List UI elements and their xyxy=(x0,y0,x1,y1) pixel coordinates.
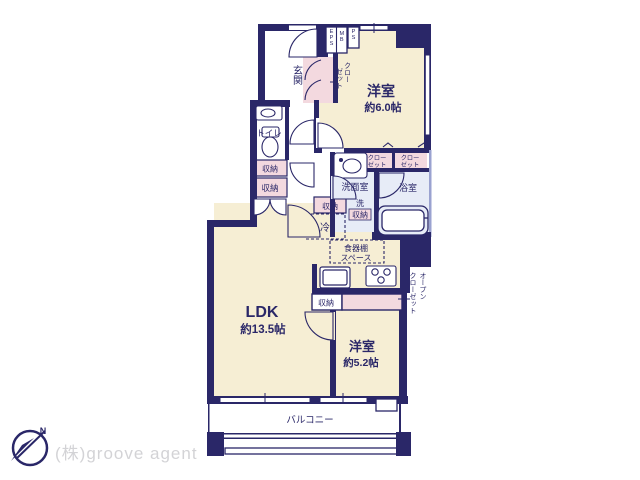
laundry-label: 洗 xyxy=(356,198,364,208)
closet1-line2: ゼット xyxy=(368,161,387,169)
toilet-label: トイレ xyxy=(256,128,282,138)
balcony-step xyxy=(376,399,397,411)
balcony-label: バルコニー xyxy=(286,415,333,426)
laundry-storage-label: 収納 xyxy=(352,210,368,220)
corner-block xyxy=(396,24,424,48)
balcony xyxy=(207,399,411,456)
storage-strip-label: 収納 xyxy=(318,298,334,308)
closet2-line2: ゼット xyxy=(401,161,420,169)
closet2-line1: クロー xyxy=(401,155,420,162)
stove-icon xyxy=(366,266,396,286)
toilet-sink-icon xyxy=(256,106,282,120)
ps-label: PS xyxy=(351,29,357,41)
entrance-closet-label-1: クロー xyxy=(344,62,352,83)
washbasin-icon xyxy=(334,153,367,178)
window-right xyxy=(425,55,430,135)
floor-plan-page: EPS MB PS 洋室 約6.0帖 玄関 クロー ゼット トイレ 収納 収納 … xyxy=(0,0,640,480)
western5-size: 約5.2帖 xyxy=(343,356,379,369)
open-closet-col1: オープン xyxy=(419,272,427,300)
kitchen-sink-icon xyxy=(320,267,350,288)
entrance-closet-label-2: ゼット xyxy=(336,67,344,89)
cupboard-label-1: 食器棚 xyxy=(344,243,368,253)
watermark: (株)groove agent xyxy=(55,444,198,463)
entrance-label: 玄関 xyxy=(291,64,303,86)
eps-label: EPS xyxy=(329,29,335,47)
bathroom-label: 浴室 xyxy=(399,182,417,193)
storage-label-2: 収納 xyxy=(261,183,278,193)
cupboard-label-2: スペース xyxy=(340,254,371,263)
bathtub-icon xyxy=(378,206,428,235)
western6-label: 洋室 xyxy=(367,83,395,99)
compass-north-label: N xyxy=(40,426,47,436)
storage-label-1: 収納 xyxy=(262,164,278,174)
open-closet-col2: クローゼット xyxy=(409,272,417,314)
compass-circle xyxy=(13,431,47,465)
western6-size: 約6.0帖 xyxy=(364,100,401,114)
storage-mid-label: 収納 xyxy=(322,201,338,211)
mb-label: MB xyxy=(339,31,345,43)
washroom-label: 洗面室 xyxy=(341,181,368,192)
fridge-label: 冷 xyxy=(320,221,330,234)
ldk-label: LDK xyxy=(246,304,279,321)
balcony-corner-right xyxy=(396,432,411,456)
closet1-line1: クロー xyxy=(368,155,387,162)
compass: N xyxy=(11,426,47,465)
balcony-corner-left xyxy=(207,432,224,456)
floor-plan: EPS MB PS 洋室 約6.0帖 玄関 クロー ゼット トイレ 収納 収納 … xyxy=(0,0,640,480)
balcony-rail xyxy=(225,448,397,454)
ldk-size: 約13.5帖 xyxy=(240,322,286,336)
western5-label: 洋室 xyxy=(349,339,375,354)
